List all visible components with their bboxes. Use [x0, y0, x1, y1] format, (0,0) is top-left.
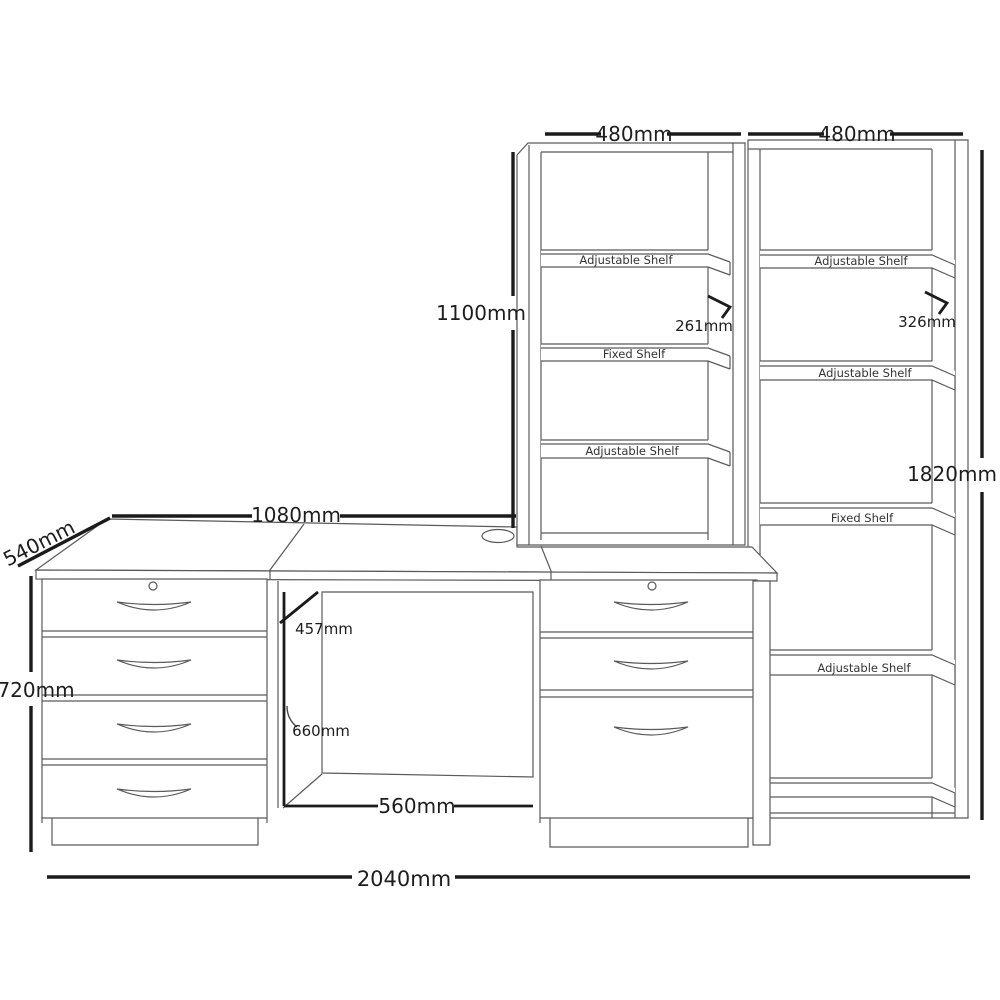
- desk-end-panel: [753, 581, 770, 845]
- kneehole: [278, 581, 533, 808]
- hutch-shelf-label: Fixed Shelf: [603, 347, 666, 361]
- dim-label-kneehole-width: 560mm: [378, 794, 455, 818]
- dim-label-hutch-shelf-depth: 261mm: [675, 317, 733, 335]
- left-plinth: [42, 818, 267, 845]
- bookcase-shelf-label: Adjustable Shelf: [814, 254, 908, 268]
- dim-label-hutch-height: 1100mm: [436, 301, 526, 325]
- diagram-canvas: Adjustable Shelf Adjustable Shelf Fixed …: [0, 0, 1000, 1000]
- hutch-shelf-label: Adjustable Shelf: [579, 253, 673, 267]
- dim-label-bookcase-height: 1820mm: [907, 462, 997, 486]
- right-pedestal-face: [540, 580, 757, 818]
- hutch: Adjustable Shelf Fixed Shelf Adjustable …: [517, 143, 745, 545]
- cable-grommet: [482, 530, 514, 543]
- dim-label-kneehole-depth: 457mm: [295, 620, 353, 638]
- dim-label-kneehole-height: 660mm: [292, 722, 350, 740]
- dim-label-bookcase-shelf-depth: 326mm: [898, 313, 956, 331]
- dim-line-kneehole-depth: [280, 592, 318, 623]
- dim-label-desk-height: 720mm: [0, 678, 75, 702]
- bookcase-shelf-label: Adjustable Shelf: [818, 366, 912, 380]
- dim-label-desk-width: 1080mm: [251, 503, 341, 527]
- hutch-shelf-label: Adjustable Shelf: [585, 444, 679, 458]
- bookcase-shelf-label: Fixed Shelf: [831, 511, 894, 525]
- dim-label-hutch-width: 480mm: [595, 122, 672, 146]
- right-pedestal: [540, 580, 770, 847]
- dim-label-total-width: 2040mm: [357, 867, 451, 891]
- dim-label-bookcase-width: 480mm: [818, 122, 895, 146]
- right-plinth: [540, 818, 748, 847]
- left-pedestal: [42, 579, 267, 845]
- modesty-panel: [322, 592, 533, 777]
- furniture-dimension-diagram: Adjustable Shelf Adjustable Shelf Fixed …: [0, 0, 1000, 1000]
- bookcase-shelf-label: Adjustable Shelf: [817, 661, 911, 675]
- kneehole-floor-edge: [283, 774, 322, 808]
- left-pedestal-face: [42, 579, 267, 818]
